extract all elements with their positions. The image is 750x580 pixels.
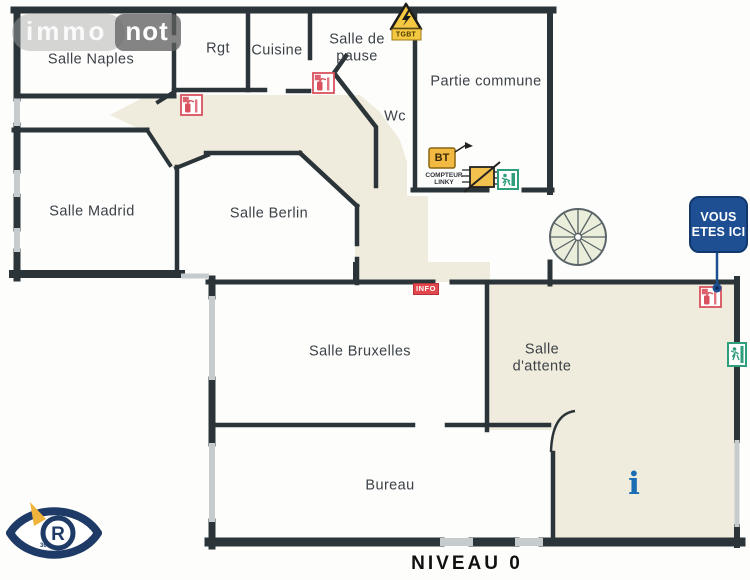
room-label-pause-line1: Salle de: [329, 31, 385, 48]
floorplan: Salle Naples Rgt Cuisine Salle de pause …: [0, 0, 750, 580]
info-tag: INFO: [413, 283, 439, 295]
compteur-line2: LINKY: [425, 179, 462, 186]
room-label-pause: Salle de pause: [329, 31, 385, 64]
you-are-here-pointer: [713, 252, 722, 293]
eye-logo-small-text: 360: [40, 543, 51, 549]
you-are-here-line1: VOUS: [691, 210, 746, 225]
room-label-partie-commune: Partie commune: [430, 74, 541, 91]
room-label-madrid: Salle Madrid: [49, 204, 134, 221]
you-are-here-line2: ETES ICI: [691, 225, 746, 240]
eye-logo-letter: R: [51, 524, 65, 545]
you-are-here-sign: VOUS ETES ICI: [689, 196, 748, 253]
room-label-attente-line2: d'attente: [513, 358, 572, 375]
immonot-logo-immo: immo: [12, 14, 125, 51]
eye-logo: R 360: [6, 490, 102, 574]
room-label-attente-line1: Salle: [513, 341, 572, 358]
bt-label: BT: [435, 152, 450, 164]
electric-meter-icon: [462, 162, 502, 192]
room-label-berlin: Salle Berlin: [230, 206, 308, 223]
room-label-attente: Salle d'attente: [513, 341, 572, 374]
room-label-naples: Salle Naples: [48, 52, 134, 69]
room-label-bruxelles: Salle Bruxelles: [309, 344, 411, 361]
room-label-cuisine: Cuisine: [251, 43, 302, 60]
room-label-bureau: Bureau: [365, 478, 414, 495]
tgbt-label: TGBT: [396, 32, 416, 39]
immonot-logo-not: not: [115, 14, 180, 51]
fire-extinguisher-icon: [313, 73, 334, 93]
immonot-logo: immo not: [12, 14, 181, 51]
fire-extinguisher-icon: [181, 95, 202, 115]
emergency-exit-icon: [498, 170, 518, 189]
spiral-staircase-icon: [550, 209, 606, 265]
info-point-icon: i: [622, 466, 646, 502]
room-label-pause-line2: pause: [329, 48, 385, 65]
compteur-line1: COMPTEUR: [425, 172, 462, 179]
room-label-wc: Wc: [384, 109, 406, 126]
level-label: NIVEAU 0: [411, 553, 523, 575]
room-label-rgt: Rgt: [206, 41, 230, 58]
compteur-linky-label: COMPTEUR LINKY: [425, 172, 462, 186]
emergency-exit-icon: [728, 343, 746, 366]
